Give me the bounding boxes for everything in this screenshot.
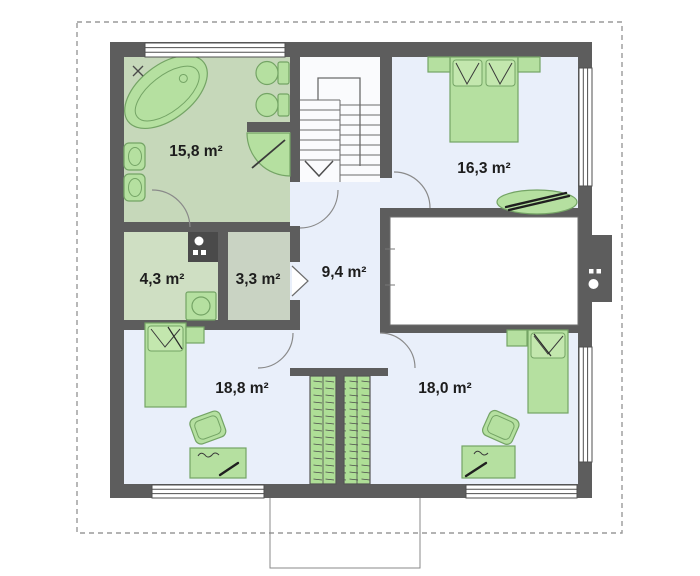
door-gap-bedroom-top-right xyxy=(380,178,392,208)
nightstand-icon xyxy=(518,57,540,72)
boiler-icon xyxy=(188,232,218,262)
bidet-icon xyxy=(256,94,289,117)
room-label-bathroom: 15,8 m² xyxy=(169,143,222,160)
window xyxy=(145,43,285,57)
plant-icon xyxy=(497,190,577,214)
room-label-bedroom-bottom-right: 18,0 m² xyxy=(418,380,471,397)
window xyxy=(152,485,264,498)
window xyxy=(466,485,577,498)
room-label-bedroom-bottom-left: 18,8 m² xyxy=(215,380,268,397)
floor-plan-page: 15,8 m² 16,3 m² 4,3 m² 3,3 m² 9,4 m² 18,… xyxy=(0,0,700,576)
double-bed-icon xyxy=(450,57,518,142)
desk-icon xyxy=(462,446,515,478)
nightstand-icon xyxy=(428,57,450,72)
sink-icon xyxy=(124,143,145,170)
nightstand-icon xyxy=(186,327,204,343)
room-label-hall: 9,4 m² xyxy=(322,264,367,281)
floor-plan-drawing: 15,8 m² 16,3 m² 4,3 m² 3,3 m² 9,4 m² 18,… xyxy=(0,0,700,576)
bed-icon xyxy=(145,323,186,407)
washing-machine-icon xyxy=(186,292,216,320)
desk-icon xyxy=(190,448,246,478)
room-label-utility: 4,3 m² xyxy=(140,271,185,288)
room-label-bedroom-top-right: 16,3 m² xyxy=(457,160,510,177)
chimney-icon xyxy=(578,235,612,302)
window xyxy=(579,347,592,462)
bed-icon xyxy=(528,330,568,413)
wardrobe-icon xyxy=(344,376,370,484)
window xyxy=(579,68,592,186)
sink-icon xyxy=(124,174,145,201)
toilet-icon xyxy=(256,62,289,85)
wardrobe-icon xyxy=(310,376,336,484)
room-label-closet: 3,3 m² xyxy=(236,271,281,288)
void-space xyxy=(385,217,578,325)
nightstand-icon xyxy=(507,330,527,346)
